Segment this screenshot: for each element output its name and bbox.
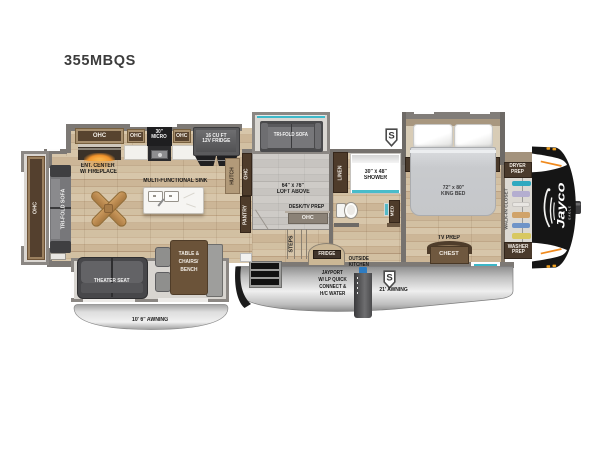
svg-text:S: S: [388, 131, 394, 142]
svg-text:EAGLE: EAGLE: [568, 205, 572, 219]
svg-text:Jayco: Jayco: [555, 182, 567, 228]
svg-text:S: S: [386, 272, 392, 283]
